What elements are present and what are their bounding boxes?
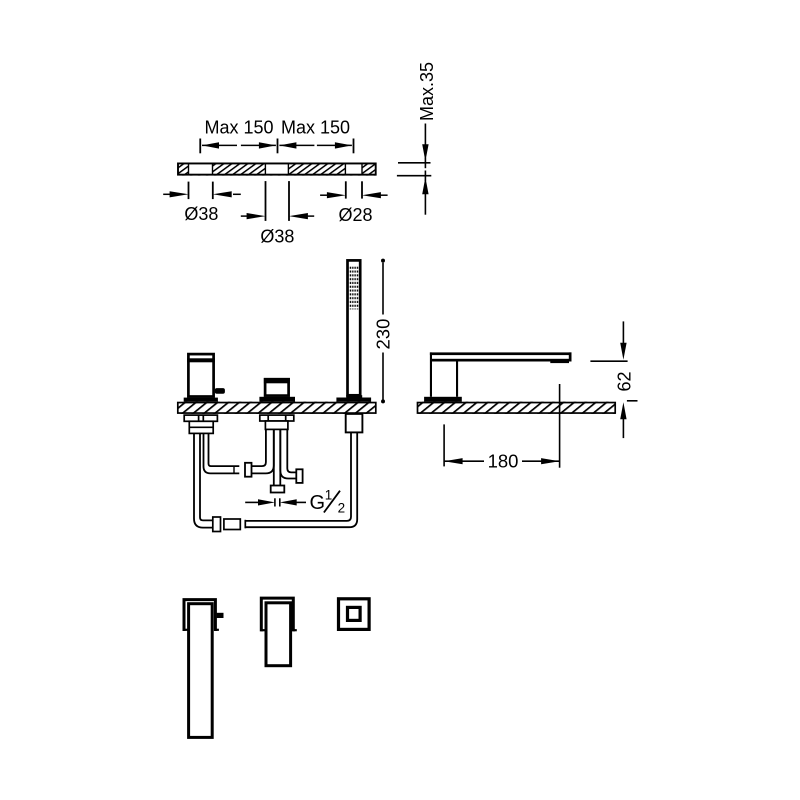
svg-text:Ø38: Ø38 bbox=[184, 204, 218, 224]
svg-text:2: 2 bbox=[338, 501, 346, 516]
svg-text:Max.35: Max.35 bbox=[417, 62, 437, 121]
svg-text:Ø38: Ø38 bbox=[260, 226, 294, 246]
svg-text:1: 1 bbox=[325, 488, 333, 503]
svg-text:Ø28: Ø28 bbox=[338, 205, 372, 225]
svg-text:G: G bbox=[310, 492, 326, 514]
svg-text:180: 180 bbox=[488, 451, 519, 472]
svg-text:230: 230 bbox=[372, 319, 393, 350]
svg-text:Max 150: Max 150 bbox=[204, 118, 273, 138]
svg-text:Max 150: Max 150 bbox=[281, 118, 350, 138]
svg-text:62: 62 bbox=[615, 371, 635, 391]
